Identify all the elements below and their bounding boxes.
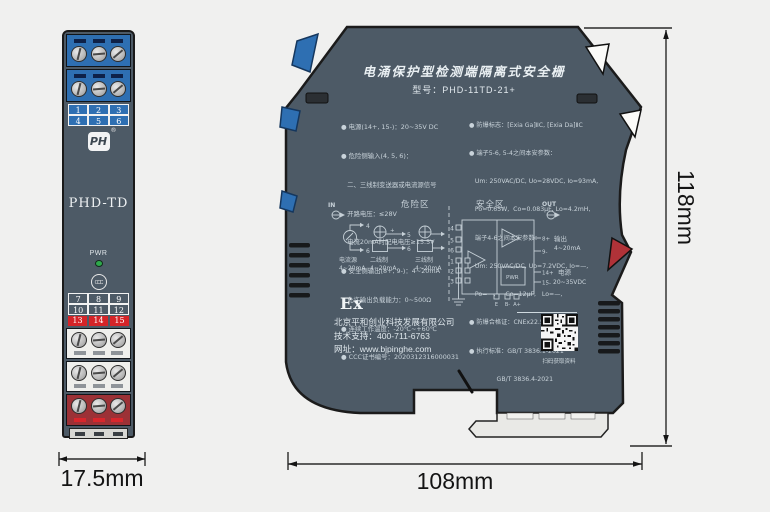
terminal-number: 4 <box>68 115 88 126</box>
front-width-dimension: 17.5mm <box>42 465 162 492</box>
side-width-dimension: 108mm <box>390 468 520 495</box>
terminal-number: 1 <box>68 104 88 115</box>
wire-slots <box>67 351 130 355</box>
terminal-number: 10 <box>68 304 88 315</box>
terminal-number: 11 <box>88 304 108 315</box>
terminal-number: 13 <box>68 316 87 326</box>
screw-icon <box>91 46 107 62</box>
support-phone: 技术支持：400-711-6763 <box>334 330 454 344</box>
screw-icon <box>91 332 107 348</box>
screw-icon <box>110 365 126 381</box>
terminal-block-white-1 <box>66 328 131 359</box>
wire-slots <box>67 384 130 388</box>
divider <box>517 312 577 313</box>
terminal-number-grid-top: 1 2 3 4 5 6 <box>68 104 129 126</box>
wire-slots <box>67 418 130 422</box>
front-model-label: PHD-TD <box>64 196 133 211</box>
spec-line: 开路电压：≤28V <box>341 210 473 220</box>
terminal-block-white-2 <box>66 361 131 392</box>
screw-icon <box>71 332 87 348</box>
qr-caption: 扫码获取资料 <box>540 357 578 365</box>
screws <box>67 46 130 62</box>
pwr-label: PWR <box>90 250 108 257</box>
spec-line: ● 电源(14+, 15-)：20~35V DC <box>341 123 473 133</box>
terminal-number: 14 <box>89 316 108 326</box>
dimension-line-height <box>584 20 676 456</box>
terminal-block-red <box>66 394 131 426</box>
screw-icon <box>71 365 87 381</box>
screw-icon <box>71 46 87 62</box>
screw-icon <box>71 81 87 97</box>
terminal-number: 12 <box>109 304 129 315</box>
ccc-mark: CCC <box>91 274 107 290</box>
terminal-number: 9 <box>109 293 129 304</box>
spec-line: 电流20mA时配电电压≥15.5V <box>341 238 473 248</box>
product-dimension-drawing: 1 2 3 4 5 6 PH® PHD-TD PWR CCC 7 8 9 10 … <box>0 0 770 512</box>
terminal-number-grid-red: 13 14 15 <box>68 316 129 326</box>
terminal-number: 2 <box>88 104 108 115</box>
terminal-number: 8 <box>88 293 108 304</box>
ex-mark: Ex <box>340 294 364 313</box>
in-label: IN <box>328 202 335 209</box>
screw-icon <box>110 332 126 348</box>
registered-mark: ® <box>111 127 117 134</box>
spec-line: ● 危险侧输入(4, 5, 6)： <box>341 152 473 162</box>
terminal-number: 5 <box>88 115 108 126</box>
terminal-number: 3 <box>109 104 129 115</box>
screws <box>67 398 130 414</box>
spec-line: ● 安全侧输出(8+, 9-)：4~20mA <box>341 267 473 277</box>
screw-icon <box>110 46 126 62</box>
side-title: 电涌保护型检测端隔离式安全栅 <box>354 61 574 80</box>
front-view: 1 2 3 4 5 6 PH® PHD-TD PWR CCC 7 8 9 10 … <box>62 30 135 438</box>
screws <box>67 332 130 348</box>
screw-icon <box>91 81 107 97</box>
front-body: 1 2 3 4 5 6 PH® PHD-TD PWR CCC 7 8 9 10 … <box>62 30 135 438</box>
terminal-number: 6 <box>109 115 129 126</box>
screw-icon <box>110 81 126 97</box>
terminal-block-blue-2 <box>66 69 131 102</box>
height-dimension: 118mm <box>672 170 699 245</box>
brand-logo: PH® <box>88 132 110 151</box>
qr-pattern <box>541 314 578 351</box>
side-model-line: 型号：PHD-11TD-21+ <box>354 83 574 96</box>
terminal-block-blue-1 <box>66 34 131 67</box>
wire-slots <box>67 74 130 78</box>
terminal-number: 15 <box>110 316 129 326</box>
wire-slots <box>67 39 130 43</box>
spec-line: 二、三线制变送器或电流源信号 <box>341 181 473 191</box>
screw-icon <box>71 398 87 414</box>
company-name: 北京平和创业科技发展有限公司 <box>334 316 454 330</box>
brand-logo-text: PH <box>90 135 107 148</box>
screw-icon <box>91 365 107 381</box>
screw-icon <box>110 398 126 414</box>
screws <box>67 81 130 97</box>
company-info: 北京平和创业科技发展有限公司 技术支持：400-711-6763 网址：www.… <box>334 316 454 357</box>
website: 网址：www.bjpinghe.com <box>334 343 454 357</box>
front-foot-strip <box>69 428 128 439</box>
screws <box>67 365 130 381</box>
din-clip-segments <box>507 413 595 419</box>
screw-icon <box>91 398 107 414</box>
qr-code: 扫码获取资料 <box>540 314 578 365</box>
terminal-number-grid-mid: 7 8 9 10 11 12 <box>68 293 129 315</box>
pwr-indicator: PWR <box>64 250 133 267</box>
terminal-number: 7 <box>68 293 88 304</box>
pwr-led <box>95 260 103 267</box>
